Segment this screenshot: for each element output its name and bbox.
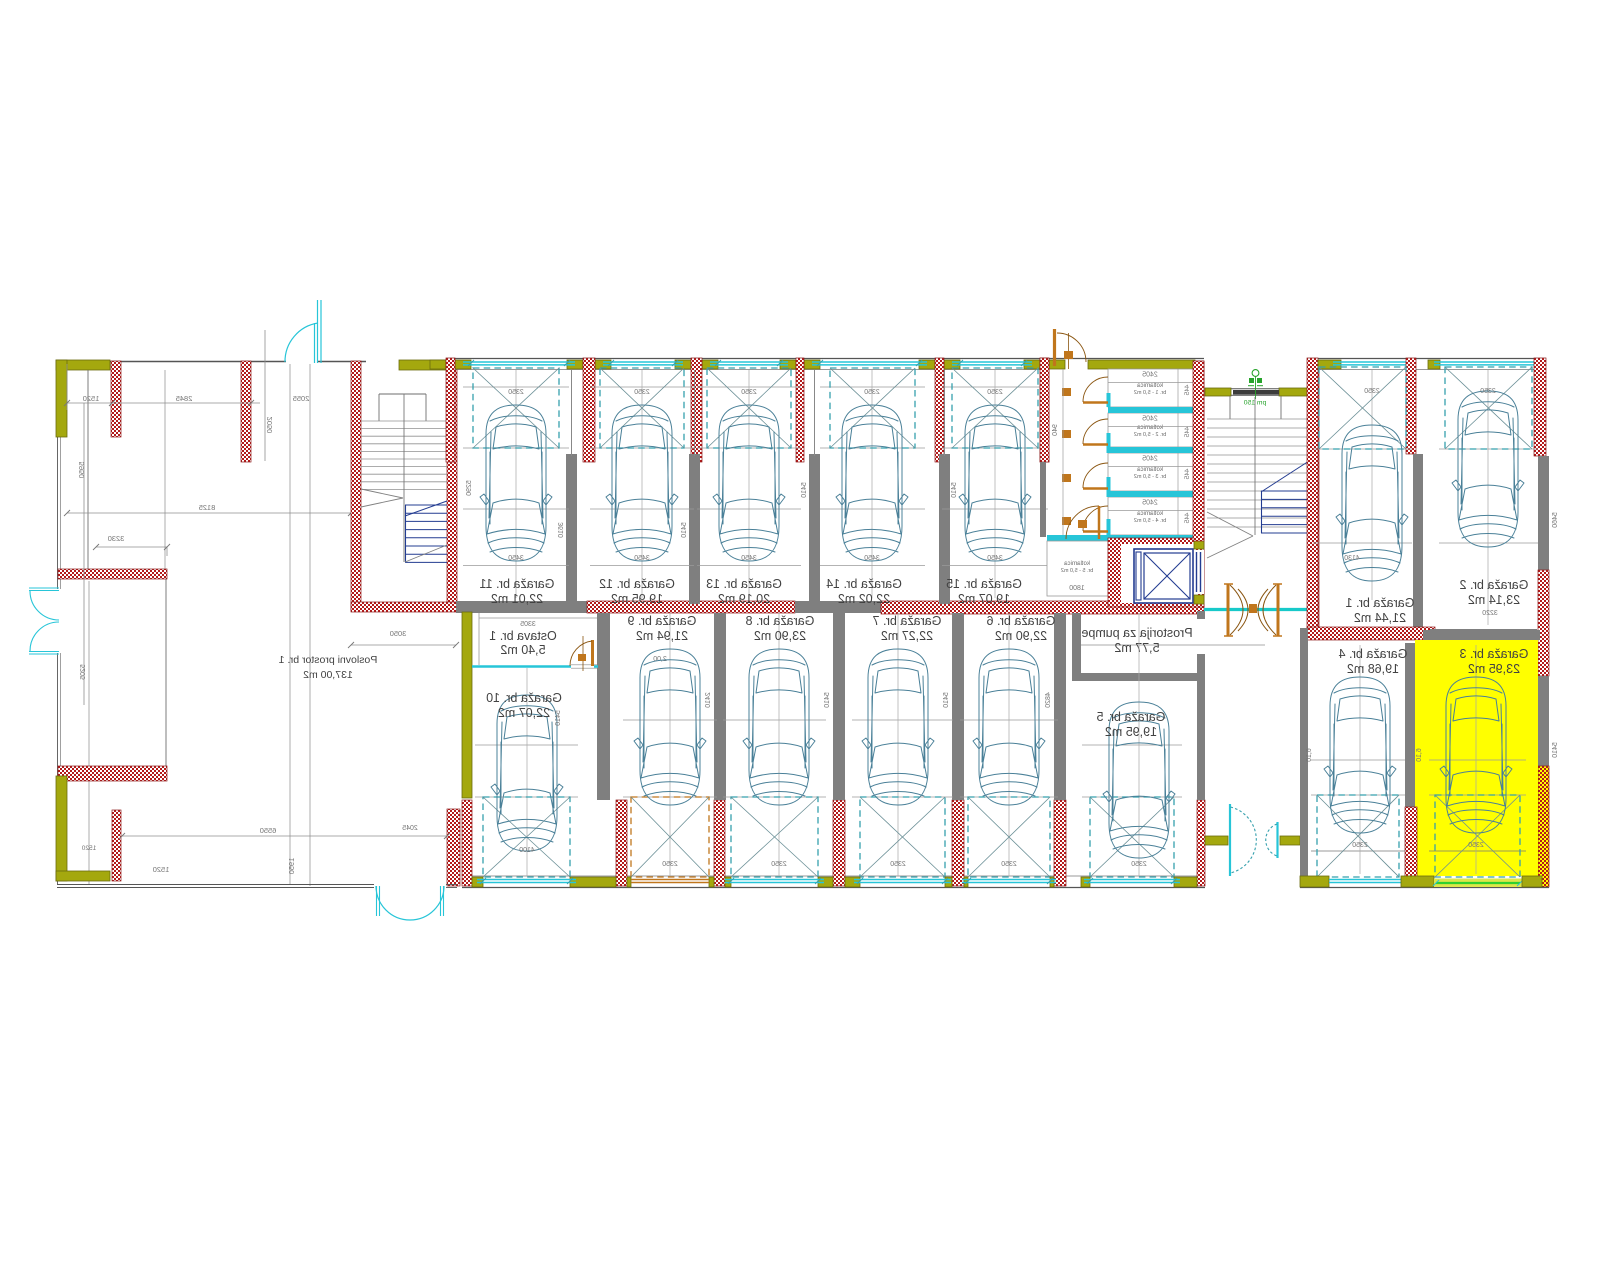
svg-text:Garaža br. 1: Garaža br. 1 — [1346, 596, 1415, 610]
svg-text:2045: 2045 — [402, 825, 418, 832]
svg-text:2350: 2350 — [771, 861, 787, 868]
svg-text:Garaža br. 3: Garaža br. 3 — [1460, 647, 1529, 661]
svg-text:1520: 1520 — [83, 394, 100, 403]
svg-text:3610: 3610 — [558, 522, 565, 538]
svg-text:br. 2 - 5,0 m2: br. 2 - 5,0 m2 — [1134, 432, 1166, 438]
svg-text:1520: 1520 — [153, 865, 170, 874]
svg-text:5290: 5290 — [466, 480, 473, 496]
svg-text:Garaža br. 2: Garaža br. 2 — [1460, 578, 1529, 592]
svg-text:8125: 8125 — [199, 503, 216, 512]
svg-text:4130: 4130 — [1344, 555, 1360, 562]
svg-text:23,90 m2: 23,90 m2 — [754, 629, 806, 643]
svg-text:2350: 2350 — [1131, 861, 1147, 868]
svg-text:4820: 4820 — [1045, 692, 1052, 708]
svg-text:2350: 2350 — [508, 389, 524, 396]
svg-text:br. 5 - 5,0 m2: br. 5 - 5,0 m2 — [1061, 568, 1093, 574]
svg-text:23,95 m2: 23,95 m2 — [1468, 662, 1520, 676]
svg-text:2405: 2405 — [1142, 500, 1158, 507]
svg-text:2350: 2350 — [890, 861, 906, 868]
svg-text:5410: 5410 — [555, 710, 562, 726]
svg-text:445: 445 — [1184, 385, 1191, 396]
svg-text:2350: 2350 — [634, 389, 650, 396]
svg-text:Garaža br. 7: Garaža br. 7 — [873, 614, 942, 628]
svg-text:2350: 2350 — [1468, 842, 1484, 849]
svg-text:kotlarnica: kotlarnica — [1064, 561, 1090, 567]
svg-text:6550: 6550 — [260, 826, 277, 835]
svg-text:445: 445 — [1184, 427, 1191, 438]
svg-text:3220: 3220 — [1482, 610, 1498, 617]
svg-text:2350: 2350 — [662, 861, 678, 868]
svg-text:22,90 m2: 22,90 m2 — [995, 629, 1047, 643]
svg-text:21,44 m2: 21,44 m2 — [1354, 611, 1406, 625]
svg-text:Poslovni prostor br. 1: Poslovni prostor br. 1 — [279, 654, 378, 666]
svg-text:2845: 2845 — [176, 394, 193, 403]
svg-text:2055: 2055 — [293, 394, 310, 403]
svg-text:20,19 m2: 20,19 m2 — [718, 592, 770, 606]
svg-text:3450: 3450 — [864, 555, 880, 562]
svg-text:3230: 3230 — [108, 534, 125, 543]
svg-text:2350: 2350 — [864, 389, 880, 396]
svg-text:Prostorija za pumpe: Prostorija za pumpe — [1081, 626, 1192, 640]
svg-text:2350: 2350 — [1001, 861, 1017, 868]
svg-text:2350: 2350 — [1352, 842, 1368, 849]
svg-text:Garaža br. 6: Garaža br. 6 — [987, 614, 1056, 628]
svg-text:3050: 3050 — [390, 629, 407, 638]
svg-text:2410: 2410 — [705, 692, 712, 708]
svg-text:445: 445 — [1184, 469, 1191, 480]
svg-text:kotlarnica: kotlarnica — [1137, 425, 1163, 431]
svg-text:5,40 m2: 5,40 m2 — [500, 643, 545, 657]
svg-text:5460: 5460 — [1552, 512, 1559, 528]
svg-text:br. 4 - 5,0 m2: br. 4 - 5,0 m2 — [1134, 518, 1166, 524]
svg-text:2350: 2350 — [987, 389, 1003, 396]
svg-text:Garaža br. 13: Garaža br. 13 — [706, 577, 782, 591]
svg-text:19,95 m2: 19,95 m2 — [611, 592, 663, 606]
svg-text:3450: 3450 — [508, 555, 524, 562]
svg-text:23,14 m2: 23,14 m2 — [1468, 593, 1520, 607]
svg-text:Garaža br. 5: Garaža br. 5 — [1097, 710, 1166, 724]
svg-text:19,68 m2: 19,68 m2 — [1347, 662, 1399, 676]
svg-text:19,07 m2: 19,07 m2 — [958, 592, 1010, 606]
svg-text:5410: 5410 — [1552, 742, 1559, 758]
svg-text:5410: 5410 — [801, 482, 808, 498]
svg-text:5,77 m2: 5,77 m2 — [1114, 641, 1159, 655]
svg-text:Garaža br. 9: Garaža br. 9 — [628, 614, 697, 628]
svg-text:5950: 5950 — [77, 462, 86, 479]
svg-text:22,27 m2: 22,27 m2 — [881, 629, 933, 643]
svg-text:21,94 m2: 21,94 m2 — [636, 629, 688, 643]
svg-text:1800: 1800 — [1069, 585, 1085, 592]
svg-text:940: 940 — [1052, 424, 1059, 436]
svg-text:Garaža br. 10: Garaža br. 10 — [486, 691, 562, 705]
svg-text:5410: 5410 — [824, 692, 831, 708]
svg-text:3450: 3450 — [987, 555, 1003, 562]
svg-text:kotlarnica: kotlarnica — [1137, 511, 1163, 517]
svg-text:2405: 2405 — [1142, 456, 1158, 463]
svg-text:5410: 5410 — [951, 482, 958, 498]
svg-text:Garaža br. 4: Garaža br. 4 — [1339, 647, 1408, 661]
svg-text:22,01 m2: 22,01 m2 — [491, 592, 543, 606]
svg-text:22,02 m2: 22,02 m2 — [838, 592, 890, 606]
svg-text:6,10: 6,10 — [1306, 748, 1313, 762]
svg-text:445: 445 — [1184, 513, 1191, 524]
svg-text:5410: 5410 — [943, 692, 950, 708]
svg-text:Garaža br. 11: Garaža br. 11 — [480, 577, 555, 591]
svg-text:2050: 2050 — [265, 417, 274, 434]
svg-text:5410: 5410 — [681, 522, 688, 538]
svg-text:2350: 2350 — [741, 389, 757, 396]
svg-text:3450: 3450 — [634, 555, 650, 562]
svg-text:br. 3 - 5,0 m2: br. 3 - 5,0 m2 — [1134, 474, 1166, 480]
svg-text:Garaža br. 8: Garaža br. 8 — [746, 614, 815, 628]
svg-text:6,10: 6,10 — [1416, 748, 1423, 762]
svg-text:2405: 2405 — [1142, 372, 1158, 379]
svg-text:2350: 2350 — [1480, 388, 1496, 395]
svg-text:19,95 m2: 19,95 m2 — [1105, 725, 1157, 739]
svg-text:137,00 m2: 137,00 m2 — [303, 669, 353, 681]
svg-text:br. 1 - 5,0 m2: br. 1 - 5,0 m2 — [1134, 390, 1166, 396]
svg-text:kotlarnica: kotlarnica — [1137, 383, 1163, 389]
svg-text:Garaža br. 15: Garaža br. 15 — [946, 577, 1022, 591]
svg-text:1520: 1520 — [81, 845, 96, 852]
svg-text:5205: 5205 — [80, 664, 87, 680]
svg-text:3450: 3450 — [741, 555, 757, 562]
svg-text:3305: 3305 — [520, 621, 536, 628]
svg-text:kotlarnica: kotlarnica — [1137, 467, 1163, 473]
svg-text:2350: 2350 — [1364, 388, 1380, 395]
svg-text:2405: 2405 — [1142, 416, 1158, 423]
svg-text:1950: 1950 — [287, 858, 296, 875]
svg-text:Garaža br. 14: Garaža br. 14 — [826, 577, 902, 591]
svg-text:Ostava br. 1: Ostava br. 1 — [489, 629, 556, 643]
svg-text:22,07 m2: 22,07 m2 — [498, 706, 550, 720]
svg-text:4100: 4100 — [519, 847, 535, 854]
svg-text:Garaža br. 12: Garaža br. 12 — [599, 577, 675, 591]
